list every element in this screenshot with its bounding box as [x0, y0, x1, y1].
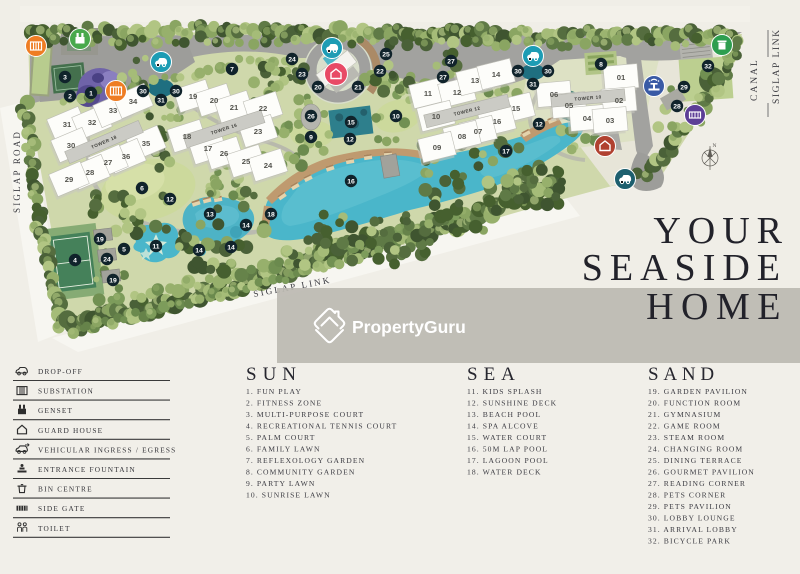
svg-text:12: 12 — [166, 196, 174, 203]
svg-text:19: 19 — [96, 236, 104, 243]
svg-text:24. CHANGING ROOM: 24. CHANGING ROOM — [648, 445, 743, 454]
svg-text:14: 14 — [227, 244, 235, 251]
svg-text:24: 24 — [103, 256, 111, 263]
svg-text:6: 6 — [140, 185, 144, 192]
svg-text:30: 30 — [139, 88, 147, 95]
svg-text:27: 27 — [447, 58, 455, 65]
svg-text:03: 03 — [606, 116, 615, 125]
svg-text:27: 27 — [104, 158, 113, 167]
svg-text:13. BEACH POOL: 13. BEACH POOL — [467, 410, 541, 419]
svg-text:11. KIDS SPLASH: 11. KIDS SPLASH — [467, 387, 543, 396]
svg-text:18. WATER DECK: 18. WATER DECK — [467, 468, 542, 477]
svg-text:07: 07 — [474, 127, 483, 136]
svg-text:29. PETS PAVILION: 29. PETS PAVILION — [648, 502, 732, 511]
svg-text:11: 11 — [424, 89, 433, 98]
svg-text:32: 32 — [704, 63, 712, 70]
svg-text:CANAL: CANAL — [750, 58, 760, 101]
svg-text:24: 24 — [264, 161, 273, 170]
svg-text:20. FUNCTION ROOM: 20. FUNCTION ROOM — [648, 399, 741, 408]
svg-text:13: 13 — [206, 211, 214, 218]
svg-text:5. PALM COURT: 5. PALM COURT — [246, 433, 315, 442]
svg-text:32. BICYCLE PARK: 32. BICYCLE PARK — [648, 537, 731, 546]
svg-text:BIN CENTRE: BIN CENTRE — [38, 485, 93, 494]
svg-text:7: 7 — [230, 66, 234, 73]
svg-text:27. READING CORNER: 27. READING CORNER — [648, 479, 746, 488]
svg-text:16: 16 — [493, 117, 502, 126]
svg-text:15: 15 — [512, 104, 521, 113]
svg-text:GUARD HOUSE: GUARD HOUSE — [38, 426, 103, 435]
svg-text:2. FITNESS ZONE: 2. FITNESS ZONE — [246, 399, 322, 408]
svg-text:25. DINING TERRACE: 25. DINING TERRACE — [648, 456, 743, 465]
svg-text:23: 23 — [298, 71, 306, 78]
svg-text:32: 32 — [88, 118, 97, 127]
svg-text:ENTRANCE FOUNTAIN: ENTRANCE FOUNTAIN — [38, 465, 136, 474]
svg-text:6. FAMILY LAWN: 6. FAMILY LAWN — [246, 445, 321, 454]
svg-text:20: 20 — [314, 84, 322, 91]
svg-text:17: 17 — [502, 148, 510, 155]
svg-text:22: 22 — [376, 68, 384, 75]
svg-text:26. GOURMET PAVILION: 26. GOURMET PAVILION — [648, 468, 755, 477]
svg-text:TOILET: TOILET — [38, 524, 71, 533]
svg-text:30: 30 — [544, 68, 552, 75]
svg-text:14: 14 — [492, 70, 501, 79]
svg-text:9. PARTY LAWN: 9. PARTY LAWN — [246, 479, 315, 488]
svg-text:31: 31 — [157, 97, 165, 104]
svg-text:26: 26 — [307, 113, 315, 120]
svg-text:01: 01 — [617, 73, 626, 82]
svg-text:06: 06 — [550, 90, 559, 99]
svg-text:22. GAME ROOM: 22. GAME ROOM — [648, 422, 721, 431]
svg-text:3: 3 — [63, 74, 67, 81]
svg-text:17: 17 — [204, 144, 213, 153]
svg-text:8. COMMUNITY GARDEN: 8. COMMUNITY GARDEN — [246, 468, 355, 477]
svg-text:31: 31 — [529, 81, 537, 88]
svg-text:SEA: SEA — [467, 364, 521, 385]
svg-text:1: 1 — [89, 90, 93, 97]
svg-text:18: 18 — [267, 211, 275, 218]
svg-text:30: 30 — [514, 68, 522, 75]
svg-text:29: 29 — [65, 175, 74, 184]
svg-text:12: 12 — [453, 88, 462, 97]
svg-text:19: 19 — [109, 277, 117, 284]
svg-text:33: 33 — [109, 106, 118, 115]
svg-text:1. FUN PLAY: 1. FUN PLAY — [246, 387, 302, 396]
svg-text:VEHICULAR INGRESS / EGRESS: VEHICULAR INGRESS / EGRESS — [38, 445, 176, 454]
svg-text:15: 15 — [347, 119, 355, 126]
svg-text:25: 25 — [242, 157, 251, 166]
svg-text:23: 23 — [254, 127, 263, 136]
svg-text:4: 4 — [73, 257, 77, 264]
svg-text:12: 12 — [346, 136, 354, 143]
svg-text:14: 14 — [195, 247, 203, 254]
svg-text:12. SUNSHINE DECK: 12. SUNSHINE DECK — [467, 399, 557, 408]
svg-text:SAND: SAND — [648, 364, 719, 385]
svg-text:10: 10 — [392, 113, 400, 120]
svg-text:08: 08 — [458, 132, 467, 141]
svg-text:HOME: HOME — [646, 286, 788, 328]
svg-text:15. WATER COURT: 15. WATER COURT — [467, 433, 547, 442]
svg-text:SIGLAP ROAD: SIGLAP ROAD — [12, 130, 22, 213]
svg-text:14. SPA ALCOVE: 14. SPA ALCOVE — [467, 422, 539, 431]
svg-text:34: 34 — [129, 97, 138, 106]
svg-text:25: 25 — [382, 51, 390, 58]
svg-text:28: 28 — [86, 168, 95, 177]
svg-text:19. GARDEN PAVILION: 19. GARDEN PAVILION — [648, 387, 748, 396]
svg-text:8: 8 — [599, 61, 603, 68]
svg-text:36: 36 — [122, 152, 131, 161]
svg-text:09: 09 — [433, 143, 442, 152]
svg-text:4. RECREATIONAL TENNIS COURT: 4. RECREATIONAL TENNIS COURT — [246, 422, 397, 431]
svg-text:28: 28 — [673, 103, 681, 110]
svg-text:10. SUNRISE LAWN: 10. SUNRISE LAWN — [246, 491, 331, 500]
svg-text:02: 02 — [615, 96, 624, 105]
svg-text:29: 29 — [680, 84, 688, 91]
svg-text:22: 22 — [259, 104, 268, 113]
svg-text:3. MULTI-PURPOSE COURT: 3. MULTI-PURPOSE COURT — [246, 410, 364, 419]
svg-text:21: 21 — [354, 84, 362, 91]
svg-text:N: N — [713, 143, 717, 149]
svg-text:31: 31 — [63, 120, 72, 129]
svg-text:18: 18 — [183, 132, 192, 141]
svg-text:30: 30 — [67, 141, 76, 150]
svg-text:SIDE GATE: SIDE GATE — [38, 504, 85, 513]
svg-text:11: 11 — [152, 243, 159, 250]
svg-text:19: 19 — [189, 92, 198, 101]
svg-text:13: 13 — [471, 76, 480, 85]
svg-text:14: 14 — [242, 222, 250, 229]
svg-text:9: 9 — [309, 134, 313, 141]
svg-text:31. ARRIVAL LOBBY: 31. ARRIVAL LOBBY — [648, 525, 738, 534]
svg-text:SUN: SUN — [246, 364, 302, 385]
svg-text:16. 50M LAP POOL: 16. 50M LAP POOL — [467, 445, 548, 454]
svg-text:30. LOBBY LOUNGE: 30. LOBBY LOUNGE — [648, 514, 736, 523]
svg-text:04: 04 — [583, 114, 592, 123]
svg-text:SIGLAP LINK: SIGLAP LINK — [772, 28, 782, 104]
svg-text:5: 5 — [122, 246, 126, 253]
svg-text:35: 35 — [142, 139, 151, 148]
svg-text:DROP-OFF: DROP-OFF — [38, 367, 83, 376]
svg-text:GENSET: GENSET — [38, 406, 73, 415]
svg-text:27: 27 — [439, 74, 447, 81]
svg-text:2: 2 — [68, 93, 72, 100]
svg-text:12: 12 — [535, 121, 543, 128]
svg-text:PropertyGuru: PropertyGuru — [352, 317, 466, 337]
svg-text:28. PETS CORNER: 28. PETS CORNER — [648, 491, 726, 500]
svg-text:30: 30 — [172, 88, 180, 95]
svg-text:20: 20 — [210, 96, 219, 105]
svg-text:21. GYMNASIUM: 21. GYMNASIUM — [648, 410, 721, 419]
svg-text:SUBSTATION: SUBSTATION — [38, 387, 94, 396]
svg-text:YOUR: YOUR — [653, 210, 789, 252]
svg-text:SEASIDE: SEASIDE — [582, 247, 787, 289]
svg-text:24: 24 — [288, 56, 296, 63]
svg-text:26: 26 — [220, 149, 229, 158]
svg-text:05: 05 — [565, 101, 574, 110]
svg-text:7. REFLEXOLOGY GARDEN: 7. REFLEXOLOGY GARDEN — [246, 456, 365, 465]
svg-text:21: 21 — [230, 103, 239, 112]
svg-text:17. LAGOON POOL: 17. LAGOON POOL — [467, 456, 549, 465]
svg-text:23. STEAM ROOM: 23. STEAM ROOM — [648, 433, 725, 442]
svg-text:16: 16 — [347, 178, 355, 185]
svg-text:10: 10 — [432, 112, 441, 121]
